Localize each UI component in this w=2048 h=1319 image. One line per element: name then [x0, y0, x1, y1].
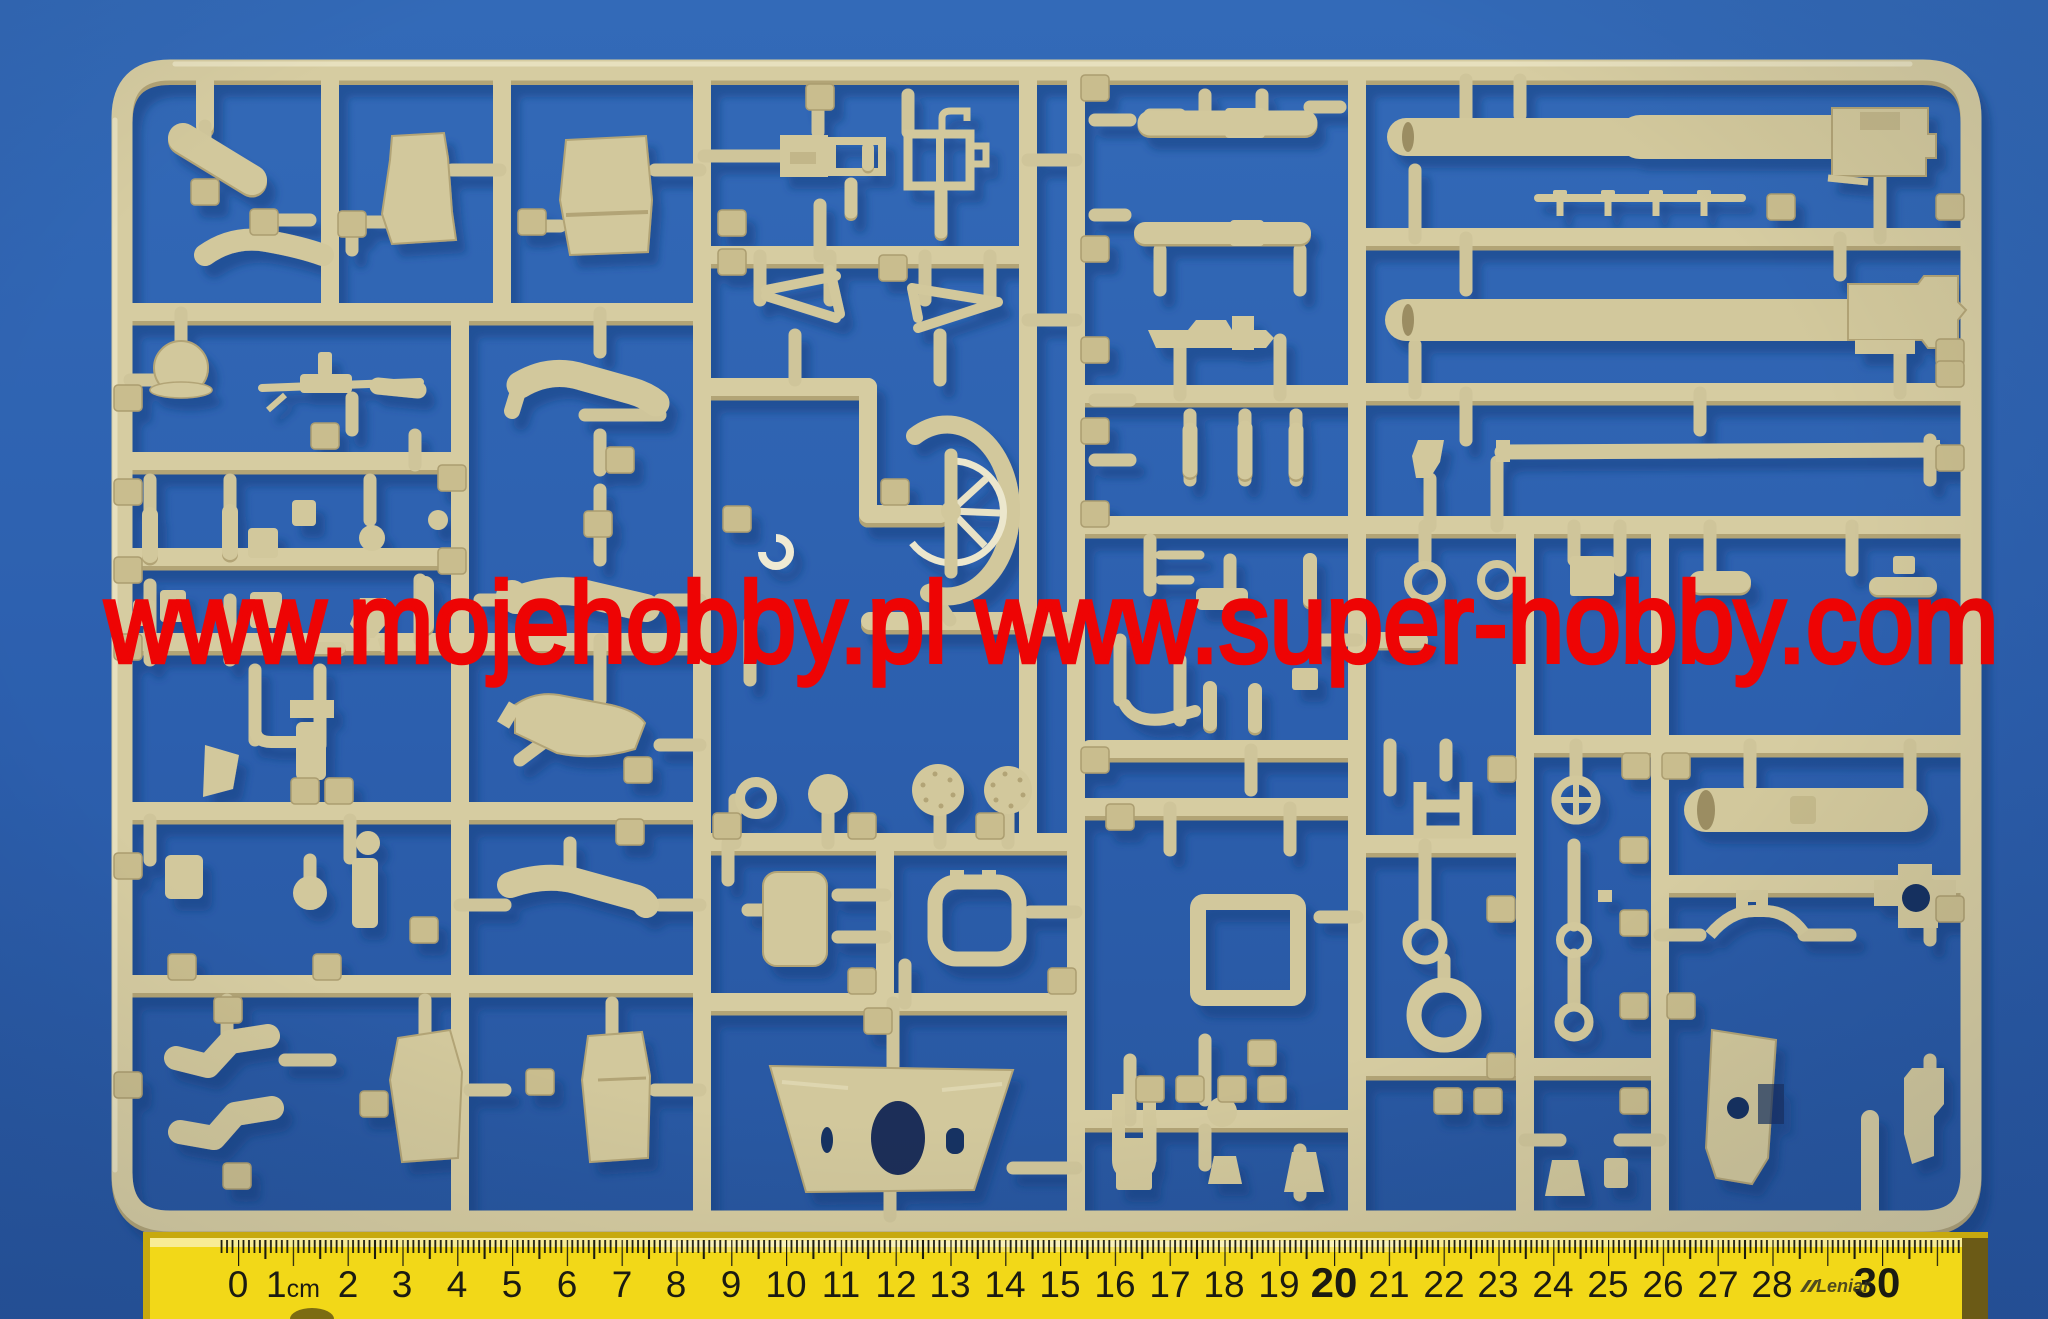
svg-text:26: 26: [1642, 1264, 1683, 1305]
svg-text:Leniar: Leniar: [1816, 1276, 1871, 1296]
svg-text:11: 11: [822, 1264, 860, 1305]
svg-text:2: 2: [338, 1264, 359, 1305]
svg-text:7: 7: [612, 1264, 633, 1305]
svg-text:28: 28: [1751, 1264, 1792, 1305]
svg-text:15: 15: [1039, 1264, 1080, 1305]
svg-text:25: 25: [1587, 1264, 1628, 1305]
svg-text:5: 5: [502, 1264, 523, 1305]
svg-text:27: 27: [1697, 1264, 1738, 1305]
svg-text:12: 12: [875, 1264, 916, 1305]
svg-text:21: 21: [1368, 1264, 1409, 1305]
svg-text:4: 4: [447, 1264, 468, 1305]
svg-text:22: 22: [1423, 1264, 1464, 1305]
svg-text:10: 10: [765, 1264, 806, 1305]
svg-text:19: 19: [1258, 1264, 1299, 1305]
svg-text:24: 24: [1532, 1264, 1573, 1305]
svg-text:13: 13: [929, 1264, 970, 1305]
svg-text:23: 23: [1477, 1264, 1518, 1305]
svg-text:3: 3: [392, 1264, 413, 1305]
svg-text:17: 17: [1149, 1264, 1190, 1305]
svg-text:18: 18: [1203, 1264, 1244, 1305]
svg-text:0: 0: [228, 1264, 249, 1305]
svg-text:14: 14: [984, 1264, 1025, 1305]
svg-text:20: 20: [1311, 1259, 1358, 1306]
svg-text:16: 16: [1094, 1264, 1135, 1305]
svg-text:8: 8: [666, 1264, 687, 1305]
svg-text:6: 6: [557, 1264, 578, 1305]
svg-text:9: 9: [721, 1264, 742, 1305]
